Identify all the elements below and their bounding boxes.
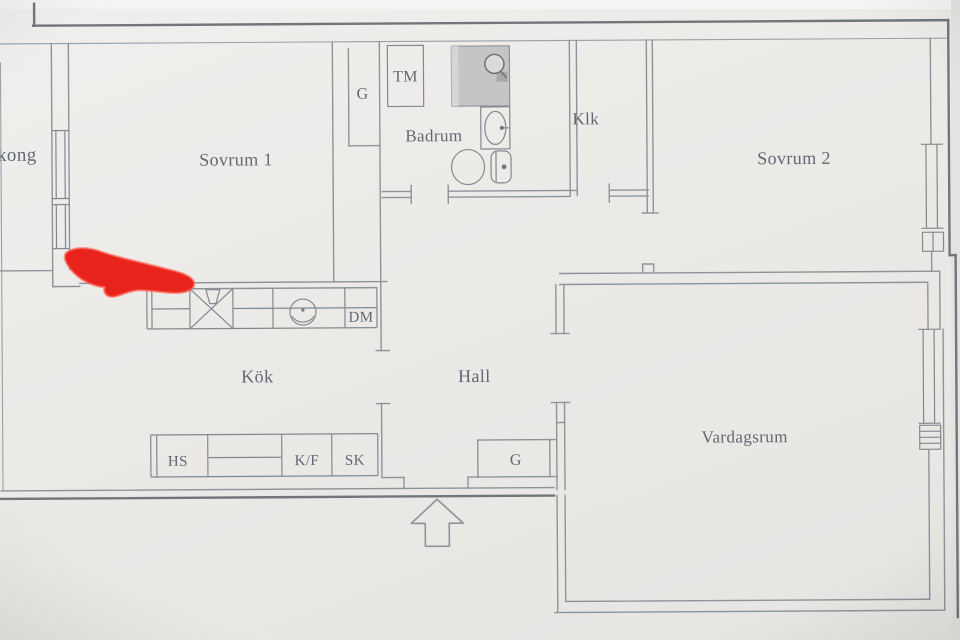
floor-plan: kong Sovrum 1 G TM Badrum Klk Sovrum 2 D…: [0, 0, 960, 640]
photo-vignette: [0, 0, 960, 640]
floor-plan-photo: kong Sovrum 1 G TM Badrum Klk Sovrum 2 D…: [0, 0, 960, 640]
